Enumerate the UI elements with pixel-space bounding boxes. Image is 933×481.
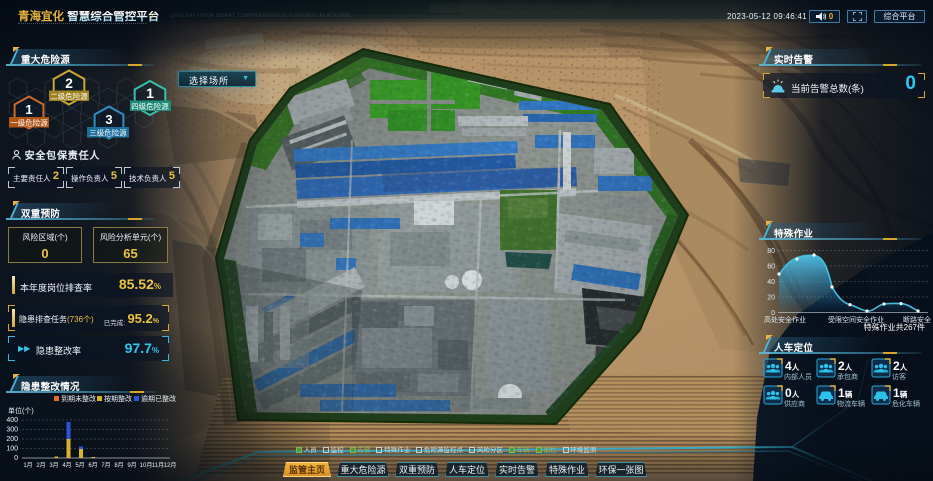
svg-text:承包商: 承包商 — [837, 372, 858, 381]
svg-text:高处安全作业: 高处安全作业 — [764, 315, 806, 324]
svg-text:1: 1 — [25, 102, 32, 117]
svg-text:逾期已整改: 逾期已整改 — [141, 394, 176, 403]
svg-text:内部人员: 内部人员 — [784, 372, 812, 381]
svg-text:7月: 7月 — [101, 462, 110, 469]
svg-text:2人: 2人 — [838, 359, 853, 373]
svg-text:四级危险源: 四级危险源 — [131, 101, 169, 111]
svg-text:9月: 9月 — [127, 462, 136, 469]
svg-text:2: 2 — [65, 75, 73, 91]
svg-text:特殊作业共267件: 特殊作业共267件 — [864, 322, 925, 332]
svg-text:按期整改: 按期整改 — [104, 394, 132, 403]
svg-text:1: 1 — [146, 85, 154, 101]
svg-text:40: 40 — [767, 279, 775, 286]
svg-text:3月: 3月 — [49, 462, 58, 469]
svg-text:300: 300 — [6, 427, 18, 434]
svg-text:1月: 1月 — [23, 462, 32, 469]
svg-text:400: 400 — [6, 417, 18, 424]
svg-text:危化车辆: 危化车辆 — [892, 399, 920, 408]
svg-text:100: 100 — [6, 446, 18, 453]
svg-text:0: 0 — [14, 455, 18, 462]
svg-text:60: 60 — [767, 264, 775, 271]
svg-text:5月: 5月 — [75, 462, 84, 469]
svg-text:访客: 访客 — [892, 372, 906, 381]
svg-text:20: 20 — [767, 295, 775, 302]
svg-text:6月: 6月 — [88, 462, 97, 469]
svg-text:三级危险源: 三级危险源 — [89, 128, 127, 138]
svg-text:到期未整改: 到期未整改 — [61, 394, 96, 403]
svg-text:12月: 12月 — [164, 462, 177, 469]
svg-text:3: 3 — [105, 112, 112, 127]
svg-text:0: 0 — [771, 310, 775, 317]
svg-text:供应商: 供应商 — [784, 399, 805, 408]
svg-text:物流车辆: 物流车辆 — [837, 399, 865, 408]
svg-text:一级危险源: 一级危险源 — [10, 118, 48, 128]
svg-text:2人: 2人 — [893, 359, 908, 373]
svg-text:80: 80 — [767, 248, 775, 255]
svg-text:10月: 10月 — [140, 462, 153, 469]
svg-text:1辆: 1辆 — [893, 386, 908, 400]
svg-text:2月: 2月 — [36, 462, 45, 469]
svg-text:1辆: 1辆 — [838, 386, 853, 400]
svg-text:11月: 11月 — [152, 462, 164, 469]
svg-text:4月: 4月 — [62, 462, 71, 469]
svg-text:8月: 8月 — [114, 462, 123, 469]
svg-text:4人: 4人 — [785, 359, 800, 373]
svg-text:单位(个): 单位(个) — [8, 406, 34, 415]
svg-text:0人: 0人 — [785, 386, 800, 400]
svg-text:二级危险源: 二级危险源 — [50, 91, 88, 101]
svg-text:200: 200 — [6, 436, 18, 443]
